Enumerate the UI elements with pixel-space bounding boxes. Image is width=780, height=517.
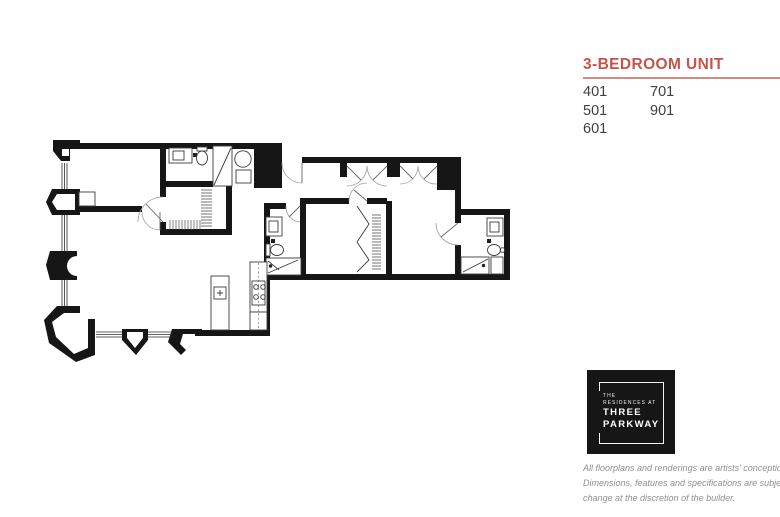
- logo-line-the: THE: [603, 393, 659, 400]
- unit-number: 401: [583, 83, 607, 102]
- logo-line-three: THREE: [603, 407, 659, 419]
- logo-line-parkway: PARKWAY: [603, 419, 659, 431]
- disclaimer-line: All floorplans and renderings are artist…: [583, 461, 780, 476]
- title-underline: [583, 77, 780, 79]
- kitchen-layer: [211, 262, 267, 330]
- unit-number: 501: [583, 102, 607, 121]
- floor-plan-drawing: [40, 130, 530, 365]
- logo-text: THE RESIDENCES AT THREE PARKWAY: [597, 391, 663, 433]
- brand-logo: THE RESIDENCES AT THREE PARKWAY: [587, 370, 675, 454]
- disclaimer: All floorplans and renderings are artist…: [583, 461, 780, 506]
- floorplan-page: { "theme": { "accent": "#c5554a", "rule"…: [0, 0, 780, 517]
- unit-number-list-col2: 701 901: [650, 83, 674, 120]
- logo-line-residences: RESIDENCES AT: [603, 400, 659, 407]
- disclaimer-line: Dimensions, features and specifications …: [583, 476, 780, 491]
- disclaimer-line: change at the discretion of the builder.: [583, 491, 780, 506]
- bay-windows-layer: [44, 140, 202, 362]
- unit-number: 601: [583, 120, 607, 139]
- unit-number: 701: [650, 83, 674, 102]
- floor-plan: [40, 130, 530, 365]
- unit-number-list-col1: 401 501 601: [583, 83, 607, 139]
- page-title: 3-BEDROOM UNIT: [583, 56, 724, 74]
- unit-number: 901: [650, 102, 674, 121]
